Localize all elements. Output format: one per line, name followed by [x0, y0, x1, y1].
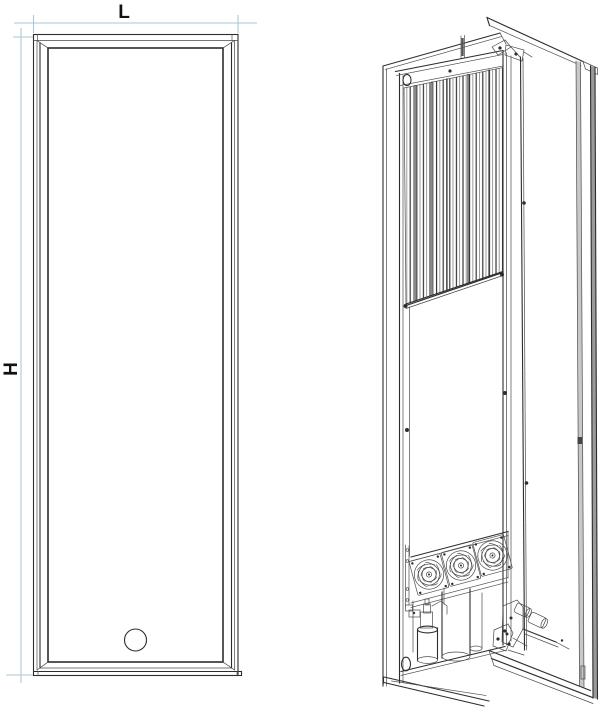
isometric-view — [383, 18, 598, 707]
filter-drier — [406, 588, 448, 663]
drawing-page: L H — [0, 0, 600, 708]
refrigeration-components — [406, 588, 570, 663]
drain-knob — [125, 629, 147, 651]
top-hinge — [492, 40, 532, 61]
width-label: L — [118, 2, 130, 23]
fan-plate — [406, 531, 513, 608]
service-valves — [502, 600, 569, 649]
front-view: L H — [1, 2, 257, 683]
bottom-hinge — [493, 624, 527, 655]
door-panel — [487, 18, 598, 704]
front-panel-frame — [34, 35, 242, 676]
coil-fins — [404, 68, 503, 305]
height-label: H — [1, 362, 22, 376]
dimension-height: H — [1, 28, 34, 683]
technical-drawing-canvas: L H — [0, 0, 600, 708]
inner-panel — [404, 273, 508, 557]
receiver-cylinder — [442, 589, 482, 661]
dimension-width: L — [14, 2, 257, 33]
